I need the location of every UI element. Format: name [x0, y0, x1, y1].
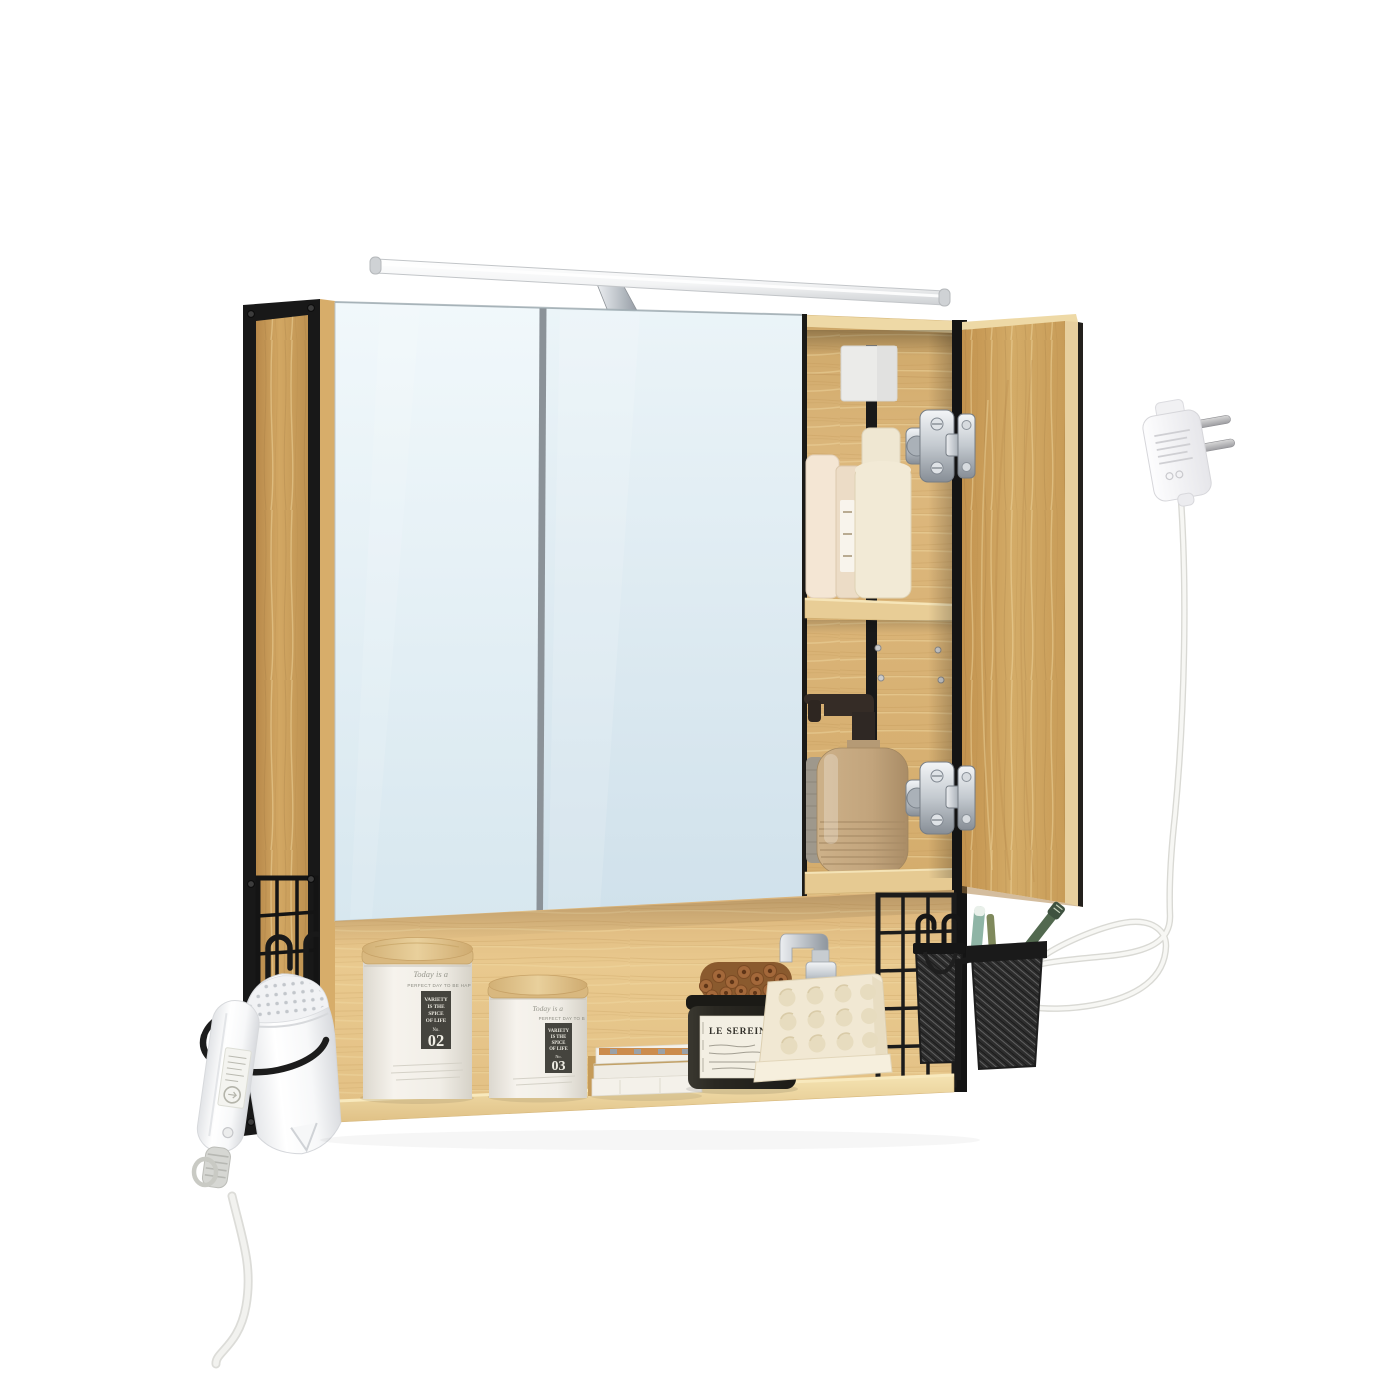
soft-shadow	[320, 1130, 980, 1150]
door-edge-line	[1078, 322, 1083, 907]
box-stack	[588, 1044, 702, 1101]
product-photo: Today is a PERFECT DAY TO BE HAP VARIETY…	[0, 0, 1400, 1400]
canister-large: Today is a PERFECT DAY TO BE HAP VARIETY…	[360, 938, 474, 1105]
plate-line: OF LIFE	[549, 1047, 567, 1052]
canister-large-script: Today is a	[413, 969, 448, 979]
mirror-cabinet-scene: Today is a PERFECT DAY TO BE HAP VARIETY…	[0, 0, 1400, 1400]
plate-line: IS THE	[427, 1004, 445, 1010]
canister-small: Today is a PERFECT DAY TO B VARIETY IS T…	[488, 975, 588, 1103]
plate-line: IS THE	[551, 1035, 566, 1040]
canister-small-script: Today is a	[532, 1004, 563, 1013]
led-end-cap-right	[939, 289, 950, 306]
door-edge-band	[1065, 321, 1078, 906]
mirror-doors	[335, 302, 805, 921]
plate-line: VARIETY	[424, 997, 448, 1003]
plate-line: SPICE	[552, 1041, 566, 1046]
canister-large-tagline: PERFECT DAY TO BE HAP	[407, 983, 471, 988]
hair-dryer-group	[189, 969, 346, 1364]
dryer-cord	[216, 1196, 248, 1364]
handle-screw	[222, 1127, 233, 1138]
led-end-cap-left	[370, 257, 381, 274]
canister-small-tagline: PERFECT DAY TO B	[539, 1016, 585, 1021]
plate-line: SPICE	[428, 1011, 444, 1017]
mesh-cup-group	[958, 901, 1066, 1080]
plate-line: VARIETY	[548, 1029, 570, 1034]
plate-line: OF LIFE	[426, 1018, 447, 1024]
led-tube	[376, 259, 944, 305]
open-cabinet-door	[962, 314, 1083, 907]
dimpled-tray	[754, 974, 892, 1082]
plate-number: 02	[428, 1031, 445, 1050]
mesh-cup	[972, 954, 1042, 1069]
plate-number: 03	[552, 1059, 566, 1074]
adapter-plug	[1139, 391, 1244, 511]
